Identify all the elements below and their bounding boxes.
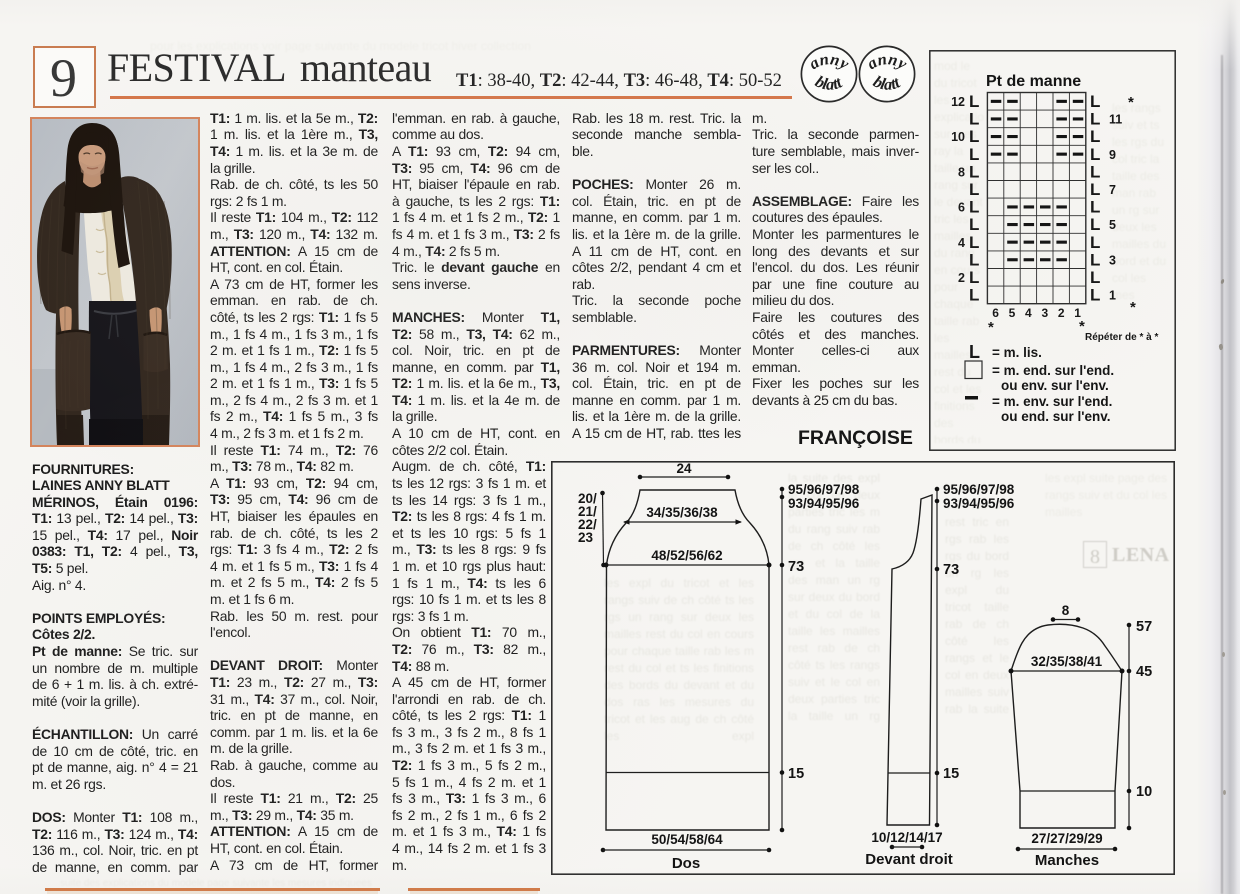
svg-text:L: L [969,92,979,111]
svg-text:ou end. sur l'env.: ou end. sur l'env. [1001,409,1110,424]
svg-text:L: L [1090,127,1100,146]
svg-text:12: 12 [951,95,965,109]
svg-text:4: 4 [958,236,965,250]
svg-text:L: L [969,180,979,199]
svg-text:L: L [969,162,979,181]
svg-text:3: 3 [1041,306,1048,320]
svg-text:= m. lis.: = m. lis. [992,345,1042,360]
svg-text:Manches: Manches [1035,852,1099,869]
svg-text:L: L [969,215,979,234]
svg-text:= m. end. sur l'end.: = m. end. sur l'end. [992,363,1114,378]
svg-text:Pt de manne: Pt de manne [986,73,1081,90]
svg-text:L: L [969,233,979,252]
svg-text:73: 73 [788,559,804,575]
svg-text:L: L [1090,268,1100,287]
svg-text:L: L [1090,250,1100,269]
svg-text:8: 8 [1062,603,1070,618]
svg-text:95/96/97/98: 95/96/97/98 [788,482,860,497]
svg-text:Dos: Dos [672,855,700,872]
svg-text:L: L [1090,180,1100,199]
svg-text:Répéter de * à *: Répéter de * à * [1085,332,1158,343]
svg-text:10: 10 [951,130,965,144]
svg-text:15: 15 [788,766,804,782]
svg-text:L: L [1090,145,1100,164]
svg-text:7: 7 [1109,183,1116,197]
svg-text:4: 4 [1025,306,1032,320]
svg-text:L: L [969,286,979,305]
svg-text:L: L [969,342,980,362]
svg-text:L: L [969,110,979,129]
svg-text:27/27/29/29: 27/27/29/29 [1031,831,1102,846]
svg-text:8: 8 [958,165,965,179]
svg-text:11: 11 [1109,113,1122,127]
svg-text:10: 10 [1136,784,1152,800]
svg-text:3: 3 [1109,253,1116,267]
svg-text:57: 57 [1136,619,1152,635]
svg-text:6: 6 [992,306,999,320]
svg-text:45: 45 [1136,664,1152,680]
svg-text:2: 2 [958,271,965,285]
svg-text:ou env. sur l'env.: ou env. sur l'env. [1001,378,1109,393]
svg-text:*: * [1128,94,1134,111]
svg-text:2: 2 [1058,306,1065,320]
svg-text:5: 5 [1109,218,1116,232]
svg-text:23: 23 [578,530,594,545]
svg-text:L: L [969,127,979,146]
svg-text:73: 73 [943,562,959,578]
svg-text:L: L [1090,198,1100,217]
svg-text:L: L [1090,233,1100,252]
svg-text:95/96/97/98: 95/96/97/98 [943,482,1015,497]
svg-text:= m. env. sur l'end.: = m. env. sur l'end. [992,394,1112,409]
svg-text:L: L [1090,92,1100,111]
svg-text:93/94/95/96: 93/94/95/96 [788,496,860,511]
svg-text:24: 24 [676,461,692,476]
svg-text:48/52/56/62: 48/52/56/62 [651,548,722,563]
svg-text:L: L [969,198,979,217]
svg-text:L: L [1090,110,1100,129]
svg-text:L: L [1090,162,1100,181]
svg-text:10/12/14/17: 10/12/14/17 [871,830,942,845]
svg-text:L: L [969,268,979,287]
svg-text:5: 5 [1009,306,1016,320]
svg-text:32/35/38/41: 32/35/38/41 [1031,654,1103,669]
svg-text:Devant droit: Devant droit [865,851,953,868]
svg-text:9: 9 [1109,148,1116,162]
svg-text:50/54/58/64: 50/54/58/64 [651,832,723,847]
svg-text:1: 1 [1109,289,1116,303]
svg-text:34/35/36/38: 34/35/36/38 [646,505,718,520]
svg-text:L: L [1090,215,1100,234]
svg-text:93/94/95/96: 93/94/95/96 [943,496,1015,511]
svg-text:*: * [988,319,994,336]
svg-text:*: * [1130,299,1136,316]
svg-text:L: L [969,145,979,164]
svg-text:15: 15 [943,766,959,782]
svg-text:6: 6 [958,201,965,215]
svg-text:L: L [969,250,979,269]
svg-text:L: L [1090,286,1100,305]
